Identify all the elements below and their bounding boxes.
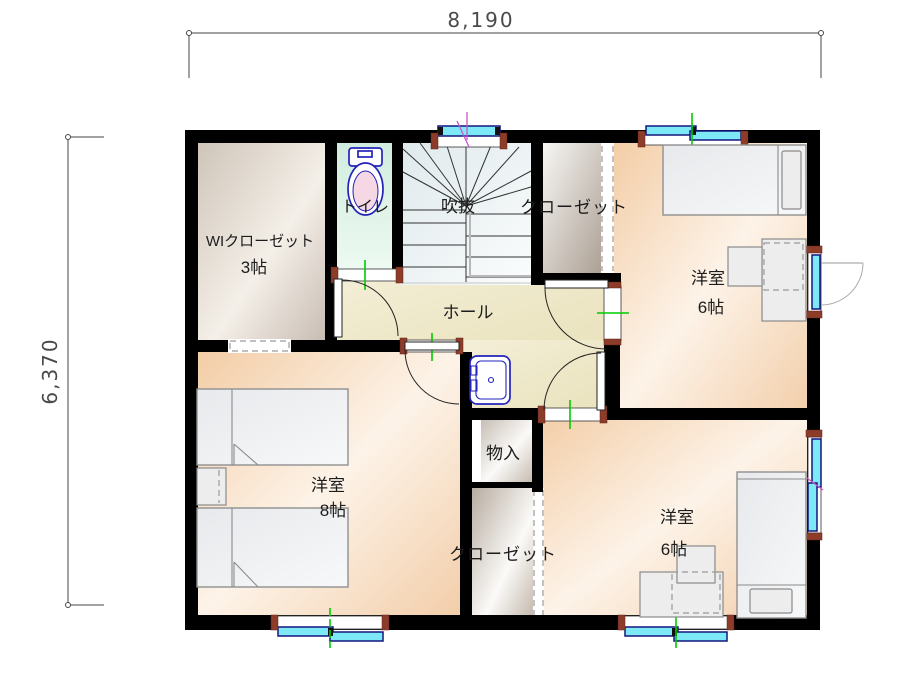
bed-southeast: [737, 472, 806, 618]
label-storage: 物入: [486, 444, 520, 463]
dimension-width-label: 8,190: [447, 8, 514, 32]
floor-plan-page: 8,190 6,370: [0, 0, 917, 693]
label-bedroom-se-size: 6帖: [661, 540, 687, 559]
wall-toilet-stairs: [392, 143, 403, 280]
label-wic-size: 3帖: [241, 258, 267, 277]
nightstand-west: [197, 468, 226, 505]
wall-storage-closet-divider: [472, 482, 532, 488]
label-bedroom-west-size: 8帖: [320, 501, 346, 520]
wall-outer-left: [185, 130, 198, 630]
wall-outer-right: [807, 130, 820, 630]
bed-northeast: [663, 145, 806, 215]
wall-rooms-divider-right: [598, 408, 820, 420]
label-stair-void: 吹抜: [441, 197, 475, 216]
label-closet-south: クローゼット: [449, 545, 557, 564]
window-stairs-top: [431, 112, 507, 149]
window-bedroom-ne-right: [806, 246, 863, 318]
label-bedroom-se: 洋室: [660, 508, 694, 527]
label-bedroom-ne-size: 6帖: [698, 298, 724, 317]
floor-plan-drawing: 8,190 6,370: [0, 0, 917, 693]
door-wic-sliding: [228, 339, 291, 353]
bed-west-1: [197, 389, 348, 465]
label-closet-north: クローゼット: [520, 198, 628, 217]
label-bedroom-west: 洋室: [311, 476, 345, 495]
window-bedroom-se-right: [806, 430, 823, 540]
dimension-top: 8,190: [187, 8, 824, 78]
dimension-height-label: 6,370: [38, 337, 62, 404]
label-toilet: トイレ: [341, 199, 389, 216]
dimension-left: 6,370: [38, 135, 104, 608]
label-hall: ホール: [443, 303, 494, 322]
washbasin-fixture: [470, 356, 510, 404]
label-wic: WIクローゼット: [206, 233, 314, 250]
label-bedroom-ne: 洋室: [691, 269, 725, 288]
